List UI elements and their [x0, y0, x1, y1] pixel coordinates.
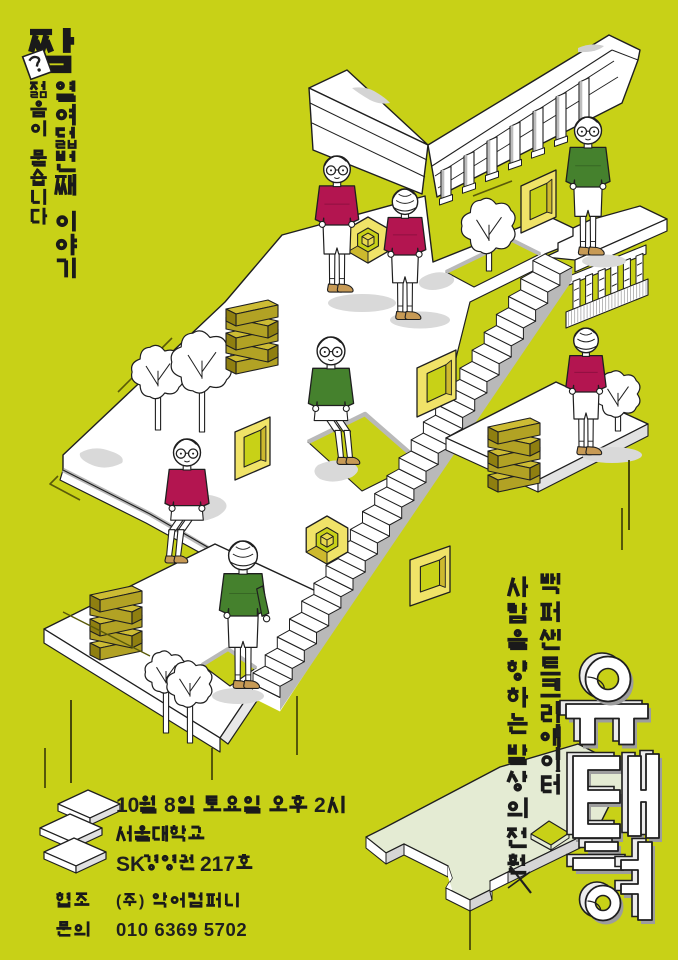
svg-text:SK: SK — [116, 853, 145, 876]
svg-text:217: 217 — [200, 853, 235, 876]
svg-text:2: 2 — [314, 794, 326, 817]
svg-text:): ) — [139, 893, 144, 910]
svg-text:8: 8 — [164, 794, 176, 817]
svg-text:010 6369 5702: 010 6369 5702 — [116, 919, 247, 940]
svg-text:(: ( — [116, 893, 122, 910]
svg-text:10: 10 — [116, 794, 139, 817]
